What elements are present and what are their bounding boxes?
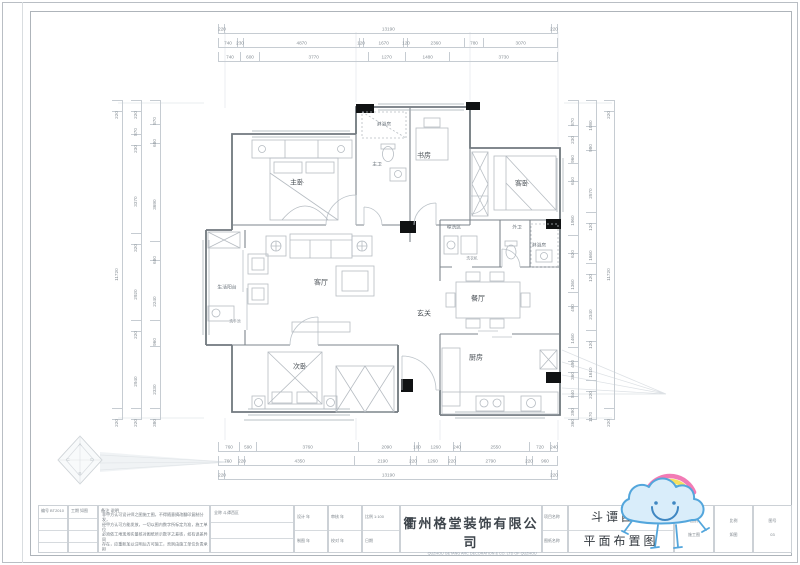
room-label-living: 客厅 <box>314 280 328 287</box>
dim-segment: 120 <box>586 263 596 274</box>
dim-segment: 13190 <box>224 470 550 479</box>
compass-letter-b: B <box>78 472 81 477</box>
dim-segment: 120 <box>586 212 596 223</box>
dim-value: 780 <box>470 41 478 46</box>
dim-segment: 2920 <box>131 244 141 320</box>
dim-segment: 1270 <box>368 52 405 61</box>
dim-chain-right-overall: 22011720220 <box>604 100 615 420</box>
dim-chain-top-row2: 7402304870120167012023607803070 <box>218 38 558 48</box>
dim-value: 1660 <box>589 250 594 260</box>
title-block-index-col1: 编号 BT2010 <box>38 505 68 553</box>
dim-value: 1960 <box>571 215 576 225</box>
title-block-company: 衢州格堂装饰有限公司 QUZHOU GETANG ARC DECORATION … <box>400 505 542 553</box>
dim-value: 2920 <box>134 289 139 299</box>
dim-segment: 870 <box>150 100 160 124</box>
title-block-scale: 比例 1:100 日期 <box>362 505 400 553</box>
dim-value: 960 <box>571 155 576 163</box>
room-label-foyer: 玄关 <box>417 311 431 318</box>
dim-value: 1080 <box>589 120 594 130</box>
dim-value: 220 <box>607 419 612 427</box>
dim-segment: 220 <box>131 320 141 331</box>
dim-segment: 600 <box>240 52 258 61</box>
dim-value: 840 <box>571 390 576 398</box>
dim-value: 240 <box>550 445 558 450</box>
dim-value: 360 <box>571 372 576 380</box>
dim-segment: 760 <box>218 442 239 451</box>
dim-value: 720 <box>536 445 544 450</box>
dim-value: 3370 <box>134 196 139 206</box>
dim-chain-left-mid: 220870230337032029202202940220 <box>131 100 142 420</box>
dim-value: 230 <box>236 41 244 46</box>
north-indicator-icon <box>58 436 230 484</box>
dim-segment: 1670 <box>363 38 403 47</box>
dim-segment: 620 <box>568 235 578 253</box>
dim-segment: 11720 <box>112 111 122 408</box>
dim-value: 380 <box>153 419 158 427</box>
dim-value: 220 <box>115 419 120 427</box>
dim-segment: 2340 <box>586 274 596 330</box>
dim-value: 220 <box>134 331 139 339</box>
dim-value: 3070 <box>516 41 526 46</box>
dim-segment: 1080 <box>586 100 596 126</box>
dim-segment: 590 <box>239 442 256 451</box>
dim-segment: 220 <box>112 408 122 420</box>
room-label-washer: 洗衣机 <box>466 257 477 261</box>
index-cell: 工期 如图 <box>71 509 88 514</box>
dim-value: 220 <box>134 111 139 119</box>
room-label-second-bedroom: 次卧 <box>293 364 307 371</box>
dim-segment: 2570 <box>586 150 596 211</box>
dim-value: 2360 <box>431 41 441 46</box>
dim-chain-bottom-row2: 7602204350219022012602202790220960 <box>218 456 558 466</box>
cloud-icon <box>622 479 709 548</box>
dim-segment: 230 <box>568 125 578 136</box>
dim-value: 220 <box>550 27 558 32</box>
dim-value: 220 <box>589 391 594 399</box>
compass-letter-a: A <box>78 443 81 448</box>
dim-value: 3730 <box>498 55 508 60</box>
dim-value: 680 <box>153 139 158 147</box>
dim-segment: 2550 <box>460 442 529 451</box>
index-cell: 编号 BT2010 <box>41 509 64 514</box>
compass-letter-c: C <box>66 458 69 463</box>
dim-segment: 490 <box>568 347 578 361</box>
fullname-label: 全称 斗谭西区 <box>214 511 239 516</box>
dim-segment: 2190 <box>354 456 410 465</box>
dim-segment: 960 <box>532 456 558 465</box>
dim-value: 220 <box>550 473 558 478</box>
dim-segment: 380 <box>150 408 160 420</box>
furniture <box>208 112 558 414</box>
dim-segment: 11720 <box>604 111 614 408</box>
dim-value: 1260 <box>428 459 438 464</box>
dim-segment: 1460 <box>568 306 578 347</box>
dim-value: 13190 <box>381 473 394 478</box>
dim-value: 1480 <box>422 55 432 60</box>
dim-value: 2090 <box>381 445 391 450</box>
dim-value: 120 <box>358 41 366 46</box>
dim-value: 13190 <box>381 27 394 32</box>
dim-segment: 220 <box>604 100 614 111</box>
dim-value: 2190 <box>377 459 387 464</box>
dim-value: 1670 <box>378 41 388 46</box>
dim-value: 220 <box>409 459 417 464</box>
title-block-sheet-no: 图号 03 <box>753 505 792 553</box>
dim-chain-right-inner: 8702309606101960620136049014604903608403… <box>568 100 579 420</box>
dim-value: 760 <box>225 445 233 450</box>
dim-segment: 240 <box>550 442 558 451</box>
dim-value: 960 <box>541 459 549 464</box>
dim-value: 490 <box>571 304 576 312</box>
dim-value: 3760 <box>302 445 312 450</box>
dim-value: 620 <box>571 250 576 258</box>
dim-segment: 610 <box>568 163 578 181</box>
dim-value: 3770 <box>308 55 318 60</box>
dim-value: 490 <box>571 360 576 368</box>
dim-segment: 390 <box>568 396 578 408</box>
dim-chain-left-overall: 22011720220 <box>112 100 123 420</box>
title-block-index-col2: 工期 如图 <box>68 505 98 553</box>
dim-value: 870 <box>571 118 576 126</box>
dim-value: 220 <box>218 27 226 32</box>
dim-value: 740 <box>226 55 234 60</box>
dim-segment: 2090 <box>358 442 415 451</box>
dim-value: 220 <box>134 419 139 427</box>
dim-value: 2340 <box>589 309 594 319</box>
dim-segment: 1480 <box>405 52 449 61</box>
dim-segment: 220 <box>586 380 596 391</box>
title-block-notes: 备注 说明 非甲方认可设计师之图施工图，不得随意摘改翻印复制分发， 经甲方认可方… <box>98 505 210 553</box>
cloud-legs <box>651 525 682 548</box>
dim-value: 220 <box>115 111 120 119</box>
room-label-master-bath: 主卫 <box>372 162 382 168</box>
dim-chain-bottom-row1: 7605903760209010012602402550720240 <box>218 442 558 452</box>
drawing-sheet: 主卧 淋浴房 主卫 书房 客卧 晾洗区 外卫 淋浴房 洗衣机 餐厅 玄关 客厅 … <box>0 0 800 565</box>
dim-segment: 3070 <box>483 38 558 47</box>
dim-value: 120 <box>589 274 594 282</box>
dim-segment: 1960 <box>568 181 578 236</box>
dim-value: 120 <box>589 223 594 231</box>
dim-segment: 120 <box>586 330 596 341</box>
title-block-check: 审核 年 校对 年 <box>328 505 362 553</box>
title-block-design: 设计 年 制图 年 <box>294 505 328 553</box>
dim-segment: 960 <box>150 320 160 346</box>
dim-value: 980 <box>589 144 594 152</box>
dim-value: 220 <box>607 111 612 119</box>
room-label-dining: 餐厅 <box>471 296 485 303</box>
interior-walls <box>232 107 560 415</box>
dim-value: 11720 <box>115 268 120 281</box>
dim-value: 2330 <box>153 384 158 394</box>
dim-value: 870 <box>153 117 158 125</box>
dim-segment: 1260 <box>418 442 453 451</box>
dim-chain-bottom-overall: 22013190220 <box>218 470 558 480</box>
cloud-eye-left <box>654 501 658 505</box>
dim-chain-left-inner: 870680369068022409602330380 <box>150 100 161 420</box>
dim-value: 1260 <box>431 445 441 450</box>
dim-value: 1360 <box>571 280 576 290</box>
dim-value: 740 <box>224 41 232 46</box>
dim-segment: 2360 <box>407 38 464 47</box>
dim-value: 760 <box>225 459 233 464</box>
room-label-study: 书房 <box>417 153 431 160</box>
dim-value: 100 <box>413 445 421 450</box>
dim-value: 1460 <box>571 334 576 344</box>
dim-value: 2790 <box>486 459 496 464</box>
dim-chain-right-mid: 108098025701201660120234012016102201170 <box>586 100 597 420</box>
dim-value: 590 <box>244 445 252 450</box>
dim-value: 2550 <box>490 445 500 450</box>
dim-segment: 240 <box>453 442 460 451</box>
dim-segment: 320 <box>131 233 141 244</box>
dim-segment: 680 <box>150 241 160 260</box>
dim-segment: 490 <box>568 292 578 306</box>
dim-value: 220 <box>448 459 456 464</box>
title-block-name-labels: 项目名称 图纸名称 <box>542 505 568 553</box>
dim-value: 230 <box>571 136 576 144</box>
dim-segment: 870 <box>568 100 578 125</box>
dim-value: 610 <box>571 177 576 185</box>
dim-segment: 2790 <box>455 456 526 465</box>
dim-segment: 220 <box>131 408 141 420</box>
notes-body: 非甲方认可设计师之图施工图，不得随意摘改翻印复制分发， 经甲方认可方能发放，一切… <box>102 513 210 553</box>
room-label-guest-bath: 外卫 <box>512 225 522 231</box>
dim-value: 360 <box>571 419 576 427</box>
dim-segment: 780 <box>464 38 483 47</box>
dim-value: 220 <box>238 459 246 464</box>
dim-value: 320 <box>134 244 139 252</box>
dim-segment: 2940 <box>131 331 141 408</box>
dim-segment: 680 <box>150 124 160 143</box>
dim-value: 230 <box>134 145 139 153</box>
dim-segment: 3760 <box>256 442 357 451</box>
dim-segment: 740 <box>218 38 237 47</box>
dim-chain-top-row3: 7406003770127014803730 <box>218 52 558 62</box>
dim-chain-top-overall: 22013190220 <box>218 24 558 34</box>
title-block-fullname: 全称 斗谭西区 <box>210 505 294 553</box>
dim-segment: 3730 <box>449 52 558 61</box>
cloud-eye-right <box>672 501 676 505</box>
dim-value: 2240 <box>153 297 158 307</box>
room-label-washbasin: 洗手池 <box>229 320 240 324</box>
dim-segment: 760 <box>218 456 238 465</box>
dim-value: 3690 <box>153 199 158 209</box>
dim-value: 240 <box>453 445 461 450</box>
company-name: 衢州格堂装饰有限公司 <box>401 513 541 551</box>
dim-value: 2570 <box>589 188 594 198</box>
dim-value: 220 <box>525 459 533 464</box>
room-label-balcony: 生活阳台 <box>217 285 236 291</box>
dim-segment: 220 <box>551 24 558 33</box>
dim-value: 4870 <box>296 41 306 46</box>
dim-value: 120 <box>402 41 410 46</box>
room-label-shower2: 淋浴房 <box>532 243 546 249</box>
dim-segment: 220 <box>112 100 122 111</box>
dim-segment: 3770 <box>259 52 368 61</box>
room-label-shower1: 淋浴房 <box>377 122 391 128</box>
compass-letter-d: D <box>90 458 93 463</box>
dim-value: 680 <box>153 256 158 264</box>
dim-value: 2940 <box>134 377 139 387</box>
dim-segment: 4350 <box>244 456 354 465</box>
room-label-laundry: 晾洗区 <box>447 225 461 231</box>
room-label-kitchen: 厨房 <box>469 355 483 362</box>
dim-value: 220 <box>218 473 226 478</box>
dim-value: 600 <box>246 55 254 60</box>
dim-value: 1610 <box>589 367 594 377</box>
dim-segment: 720 <box>529 442 549 451</box>
dim-segment: 3690 <box>150 143 160 241</box>
dim-value: 960 <box>153 338 158 346</box>
dim-segment: 13190 <box>224 24 550 33</box>
dim-segment: 1360 <box>568 253 578 291</box>
company-name-en: QUZHOU GETANG ARC DECORATION & CO. LTD O… <box>428 552 515 556</box>
room-label-guest-bedroom: 客卧 <box>515 181 529 188</box>
dim-value: 1270 <box>382 55 392 60</box>
dim-segment: 230 <box>131 134 141 145</box>
dim-value: 120 <box>589 341 594 349</box>
dim-segment: 740 <box>218 52 240 61</box>
dim-segment: 2330 <box>150 346 160 408</box>
cloud-mascot <box>608 462 728 562</box>
dim-segment: 220 <box>131 100 141 111</box>
room-label-master-bedroom: 主卧 <box>290 180 304 187</box>
dim-segment: 2240 <box>150 260 160 320</box>
dim-value: 870 <box>134 128 139 136</box>
dim-segment: 220 <box>551 470 558 479</box>
exterior-walls <box>206 107 560 415</box>
dim-value: 390 <box>571 408 576 416</box>
dim-value: 4350 <box>294 459 304 464</box>
dim-segment: 220 <box>604 408 614 420</box>
dim-value: 1170 <box>589 412 594 422</box>
dim-segment: 3370 <box>131 145 141 233</box>
dim-segment: 1260 <box>416 456 448 465</box>
dim-segment: 4870 <box>243 38 359 47</box>
dim-value: 11720 <box>607 268 612 281</box>
